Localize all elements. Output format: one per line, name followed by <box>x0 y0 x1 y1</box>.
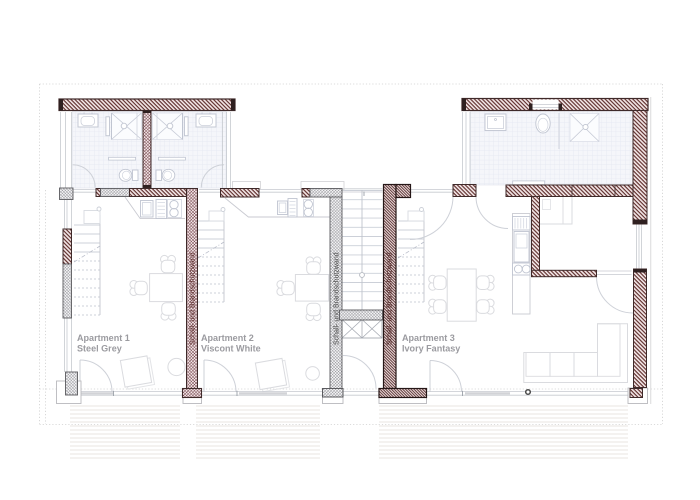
svg-text:Viscont White: Viscont White <box>201 344 261 354</box>
svg-text:Schall- und Brandschutzwand: Schall- und Brandschutzwand <box>190 252 197 345</box>
svg-text:Apartment 3: Apartment 3 <box>402 333 455 343</box>
svg-text:Steel Grey: Steel Grey <box>77 344 122 354</box>
svg-text:Apartment 2: Apartment 2 <box>201 333 254 343</box>
svg-text:Schall- und Brandschutzwand: Schall- und Brandschutzwand <box>387 252 394 345</box>
svg-text:Schall- und Brandschutzwand: Schall- und Brandschutzwand <box>334 252 341 345</box>
svg-text:Apartment 1: Apartment 1 <box>77 333 130 343</box>
svg-text:Ivory Fantasy: Ivory Fantasy <box>402 344 460 354</box>
